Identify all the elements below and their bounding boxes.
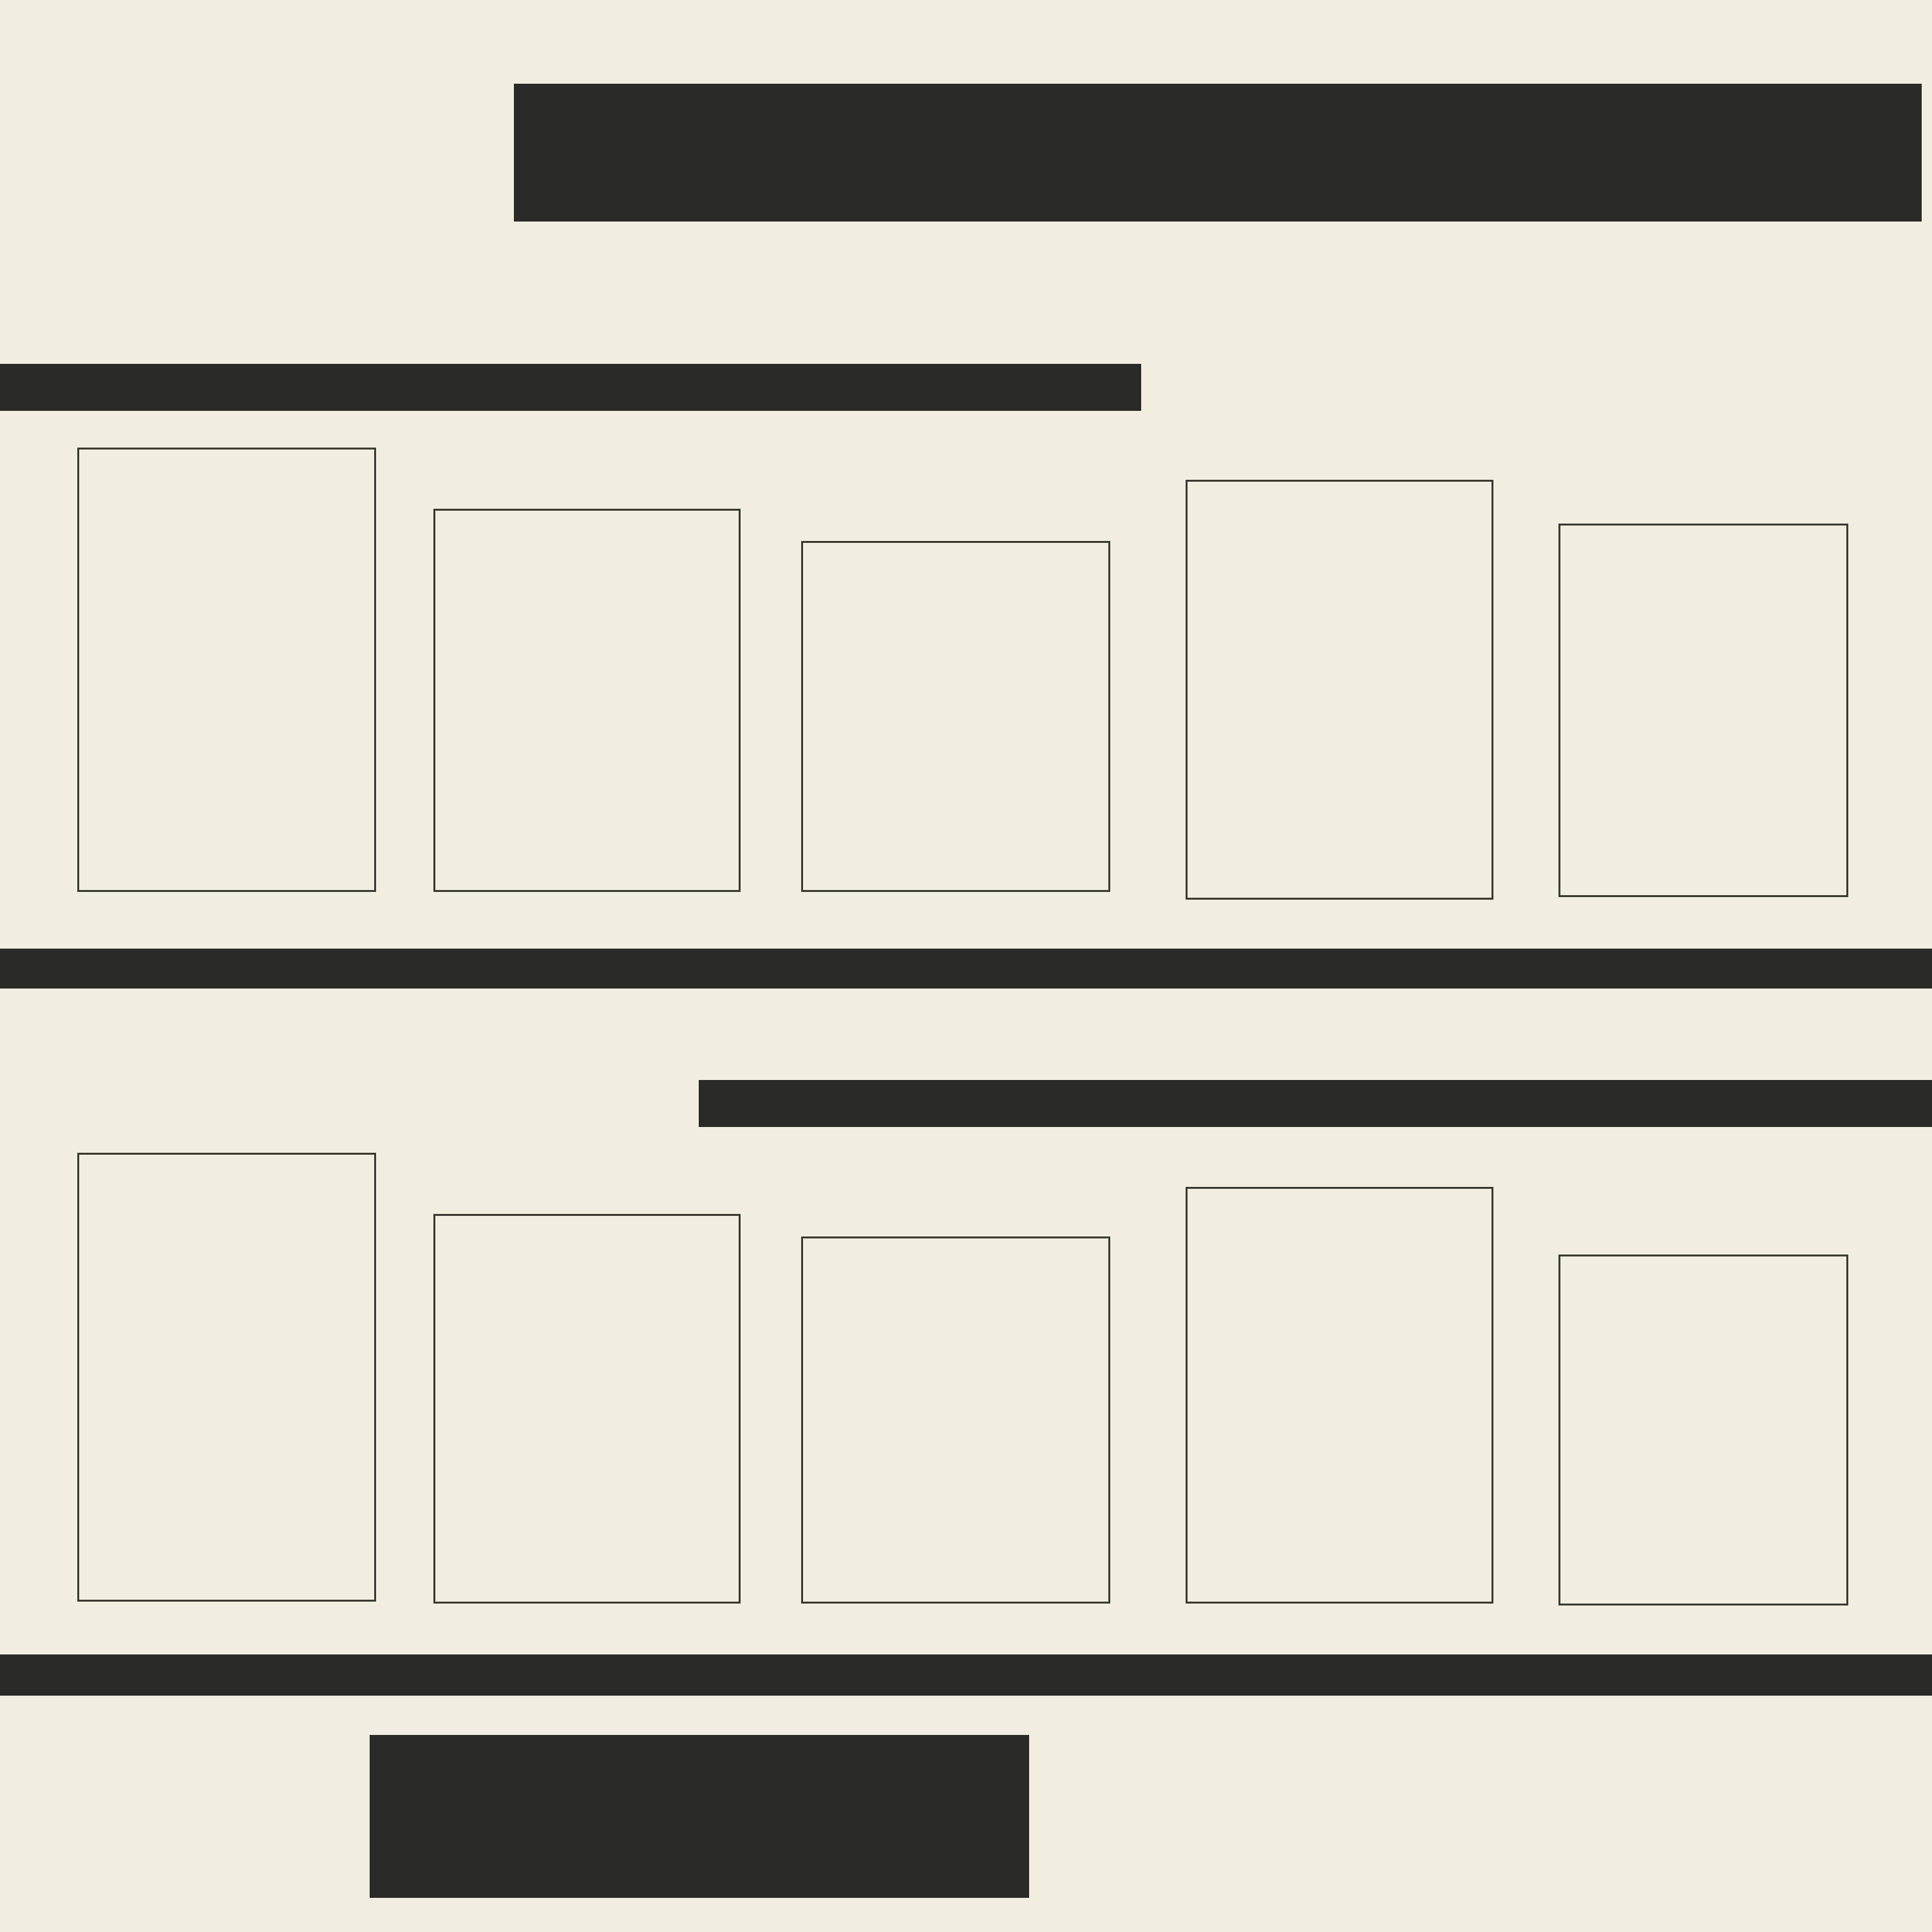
inches-banner-text [0, 364, 148, 411]
inches-banner-text [144, 364, 479, 411]
size-box-inches-iso [1186, 480, 1493, 900]
inches-banner-text [1836, 364, 1932, 411]
inches-banner-text [1160, 364, 1495, 411]
centimeters-banner-text [1694, 1080, 1932, 1127]
size-box-inches-ratio-3-4 [433, 509, 741, 892]
footer-label-2 [773, 1654, 1159, 1696]
size-info-poster [0, 0, 1932, 1932]
inches-banner-text [1496, 364, 1831, 411]
title-banner-text [660, 84, 1188, 222]
footer-label-3 [1146, 949, 1533, 989]
footer-label-3 [1146, 1654, 1533, 1696]
size-box-inches-ratio-4-5 [801, 541, 1110, 892]
title-banner-text [0, 84, 464, 222]
size-box-inches-ratio-2-3 [77, 448, 376, 892]
size-box-centimeters-ratio-2-3 [77, 1153, 376, 1602]
centimeters-banner-text [0, 1080, 287, 1127]
size-box-centimeters-iso [1186, 1187, 1493, 1604]
centimeters-banner-text [261, 1080, 712, 1127]
footer-label-0 [32, 1654, 419, 1696]
footer-label-4 [1510, 949, 1897, 989]
footer-label-1 [398, 1654, 784, 1696]
centimeters-banner-text [1224, 1080, 1674, 1127]
size-box-inches-11x14 [1558, 524, 1848, 897]
size-box-centimeters-ratio-4-5 [801, 1236, 1110, 1604]
footer-label-0 [32, 949, 419, 989]
footer-label-1 [398, 949, 784, 989]
logo-dark-box [370, 1735, 1029, 1898]
footer-label-2 [773, 949, 1159, 989]
centimeters-banner-text [753, 1080, 1204, 1127]
size-box-centimeters-ratio-3-4 [433, 1214, 741, 1604]
inches-banner-text [484, 364, 819, 411]
title-banner-text [1501, 84, 1932, 222]
size-box-centimeters-11x14 [1558, 1255, 1848, 1605]
footer-label-4 [1510, 1654, 1897, 1696]
inches-banner-text [824, 364, 1159, 411]
